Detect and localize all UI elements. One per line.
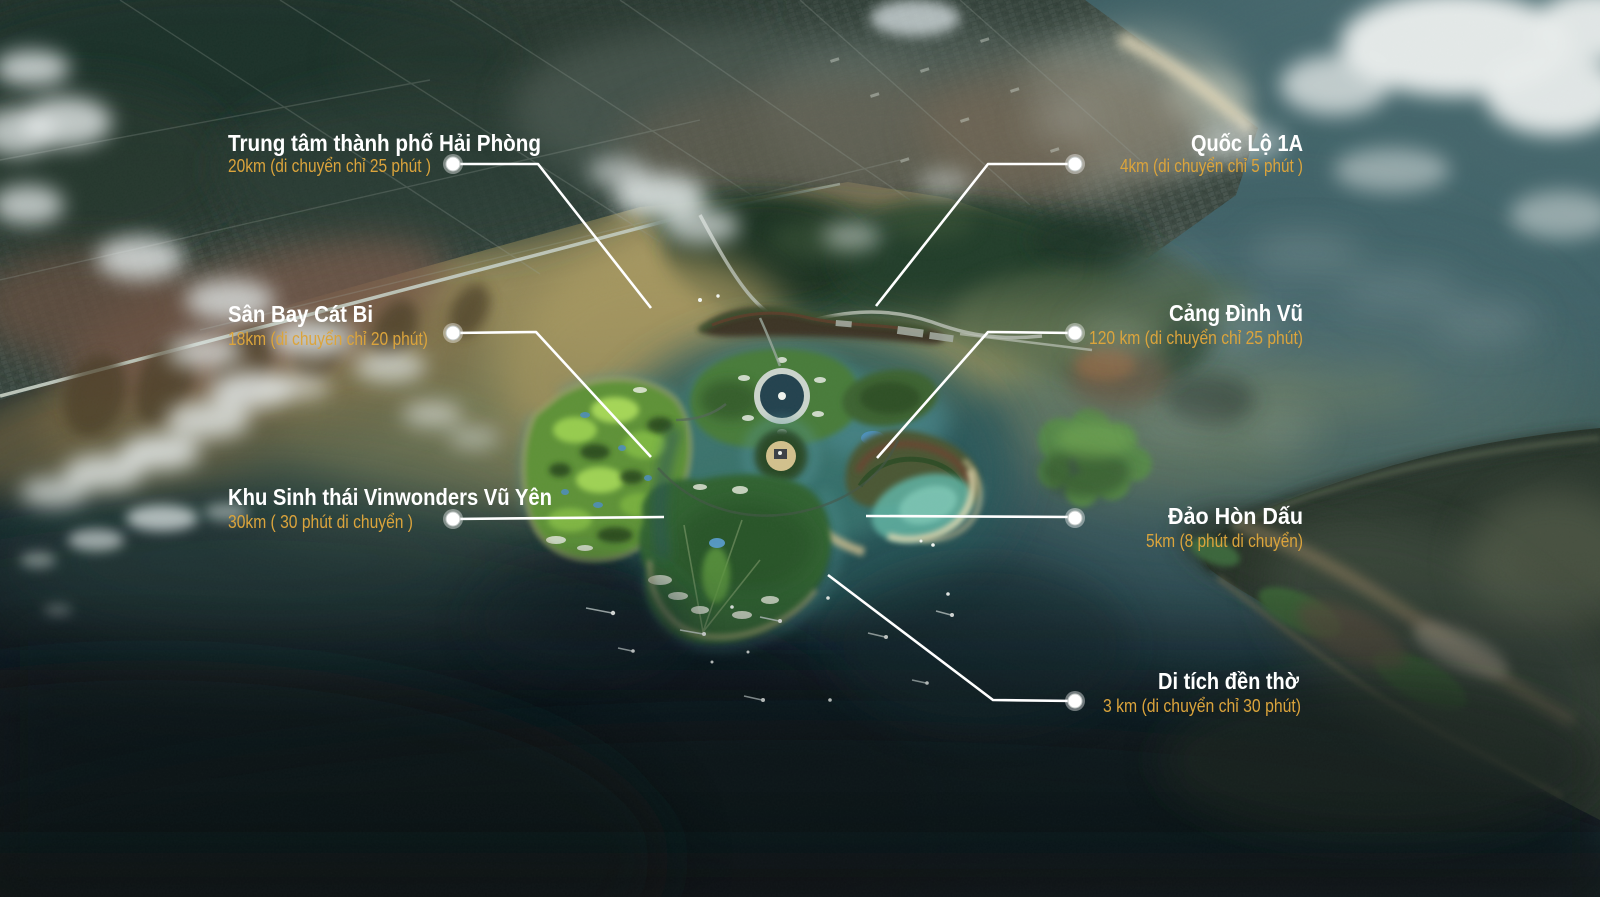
svg-text:5km (8 phút di chuyển): 5km (8 phút di chuyển): [1146, 531, 1303, 551]
svg-text:120 km (di chuyển chỉ 25 phút): 120 km (di chuyển chỉ 25 phút): [1089, 328, 1303, 348]
svg-text:Quốc Lộ 1A: Quốc Lộ 1A: [1191, 130, 1303, 156]
svg-text:Di tích đền thờ: Di tích đền thờ: [1158, 668, 1300, 694]
svg-text:4km (di chuyển chỉ 5 phút ): 4km (di chuyển chỉ 5 phút ): [1120, 156, 1303, 176]
svg-text:30km ( 30 phút di chuyển ): 30km ( 30 phút di chuyển ): [228, 512, 413, 532]
svg-text:3 km (di chuyển chỉ 30 phút): 3 km (di chuyển chỉ 30 phút): [1103, 696, 1301, 716]
svg-text:Đảo Hòn Dấu: Đảo Hòn Dấu: [1168, 503, 1303, 529]
svg-text:Cảng Đình Vũ: Cảng Đình Vũ: [1169, 300, 1303, 326]
svg-text:18km (di chuyển chỉ 20 phút): 18km (di chuyển chỉ 20 phút): [228, 329, 428, 349]
svg-text:Khu Sinh thái Vinwonders Vũ Yê: Khu Sinh thái Vinwonders Vũ Yên: [228, 484, 552, 510]
svg-text:Sân Bay Cát Bi: Sân Bay Cát Bi: [228, 301, 373, 327]
svg-text:20km (di chuyển chỉ 25 phút ): 20km (di chuyển chỉ 25 phút ): [228, 156, 431, 176]
svg-text:Trung tâm thành phố Hải Phòng: Trung tâm thành phố Hải Phòng: [228, 130, 541, 156]
